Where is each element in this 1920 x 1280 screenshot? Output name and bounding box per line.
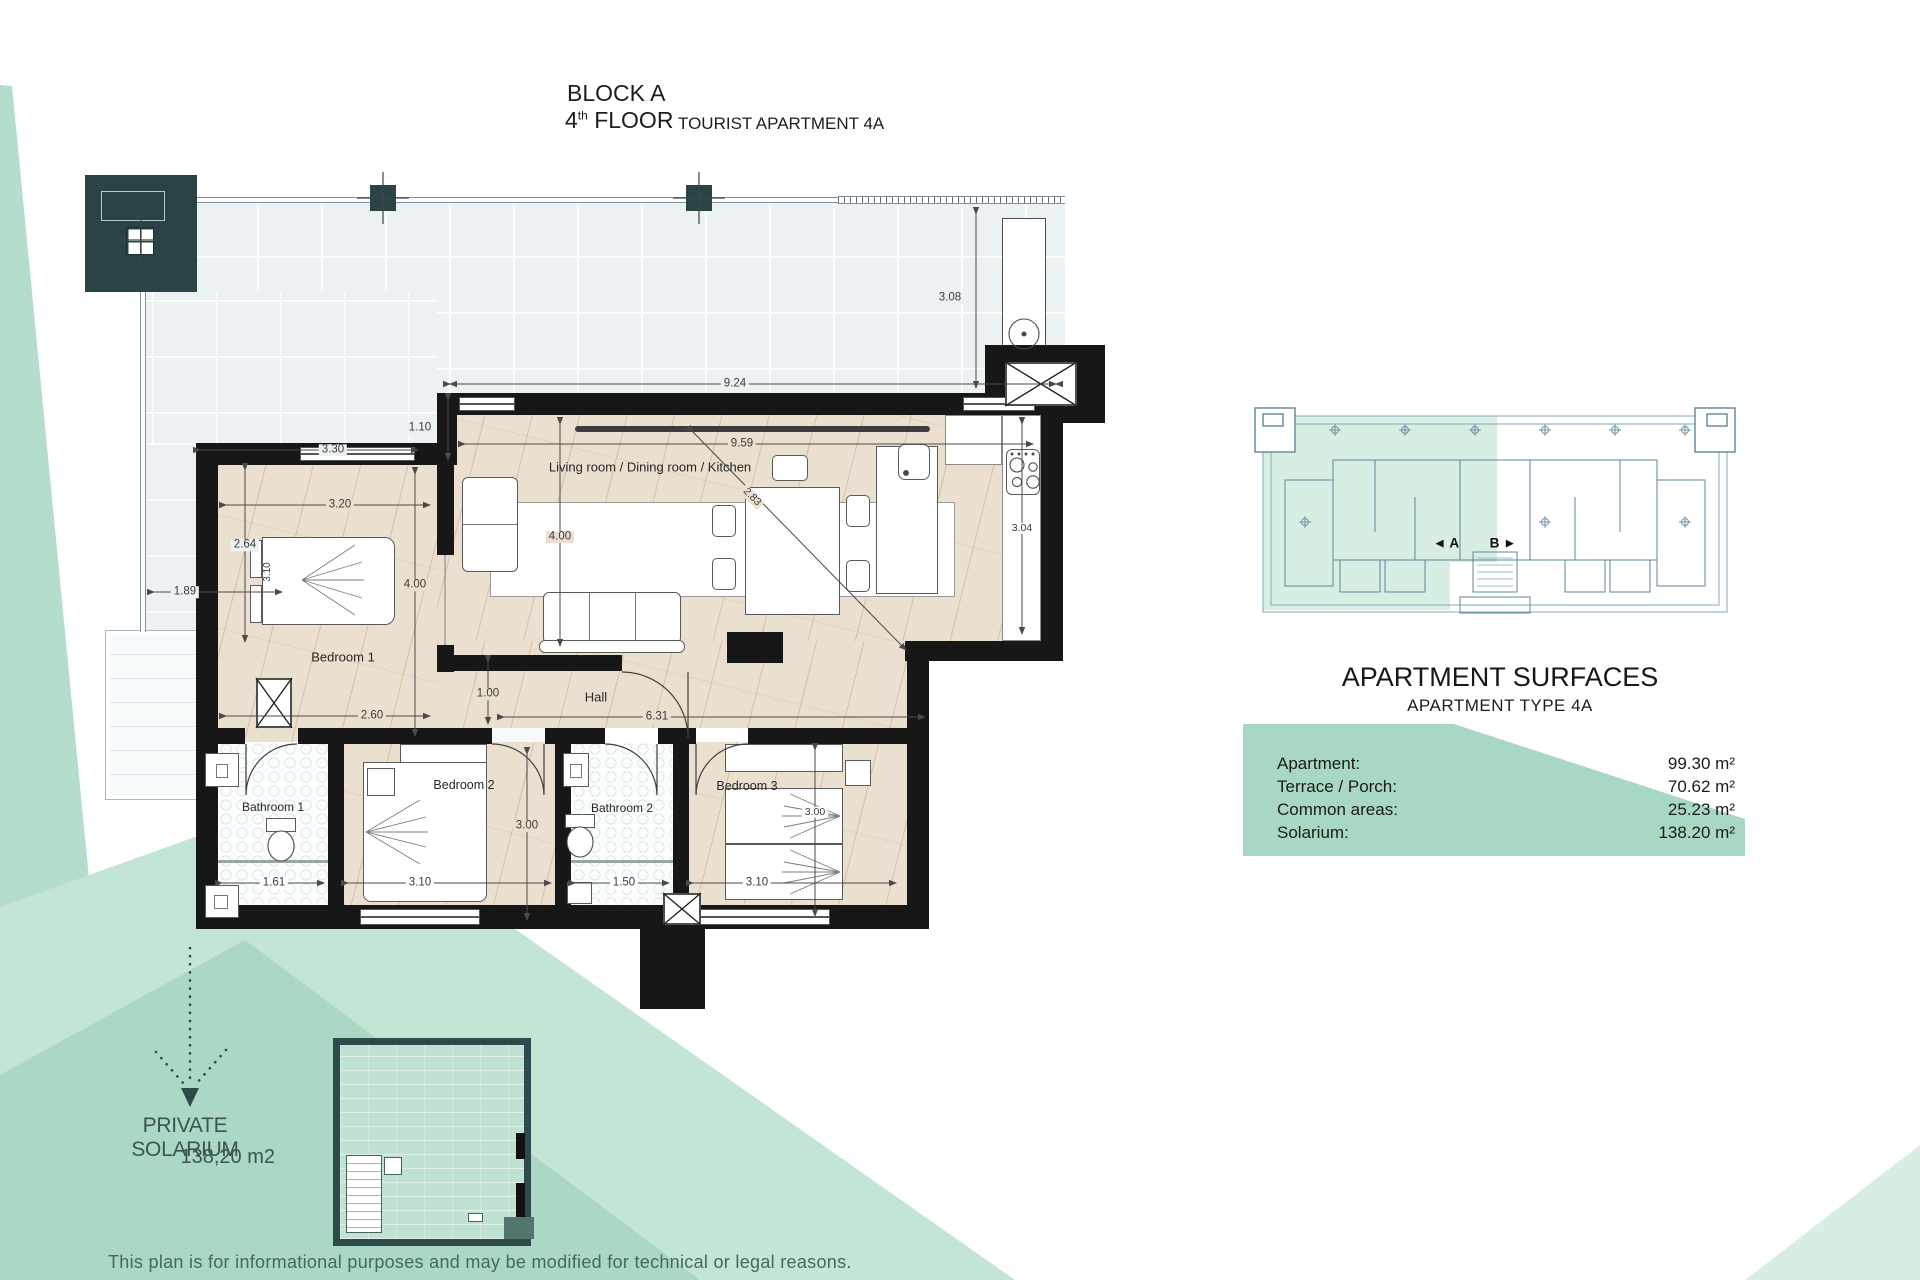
wall [437,655,622,671]
pillow [367,768,395,796]
sofa-icon [543,592,681,644]
room-label-bedroom3: Bedroom 3 [716,779,777,793]
solarium-mini-plan [333,1038,531,1246]
overview-linework [1245,402,1745,640]
bed-headboard [250,585,262,623]
room-label-hall: Hall [585,690,607,705]
wall [907,661,929,929]
stairs-landing [384,1157,402,1175]
column-marker-icon [370,185,396,211]
column-marker-icon [686,185,712,211]
chair-icon [712,505,736,537]
room-label-bedroom2: Bedroom 2 [433,778,494,792]
surface-value: 138.20 m² [1658,823,1735,843]
wall [1041,415,1063,641]
room-label-bedroom1: Bedroom 1 [311,650,375,665]
surfaces-subtitle: APARTMENT TYPE 4A [1240,696,1760,716]
basin-bowl [570,764,582,778]
overview-label-b: B ► [1490,536,1517,551]
terrace-left-pocket [140,292,437,443]
core-grid-window-icon [126,227,154,255]
chair-icon [772,455,808,481]
room-label-bathroom2: Bathroom 2 [591,801,653,815]
room-label-living: Living room / Dining room / Kitchen [549,460,751,475]
overview-label-a: ◄ A [1433,536,1459,551]
solarium-detail [468,1213,483,1222]
floor-ordinal: th [578,108,588,122]
kitchen-cabinet [945,415,1002,465]
solarium-door-jamb [516,1133,525,1159]
bed-icon [725,844,843,900]
window [700,909,830,925]
chair-icon [846,495,870,527]
terrace-rail-left [140,292,146,632]
wall [727,632,783,663]
shaft-x-icon [663,893,701,925]
dim-terrace-top: 9.24 [721,378,749,390]
floor-plan-page: BLOCK A 4th FLOOR TOURIST APARTMENT 4A [0,0,1920,1280]
surfaces-title: APARTMENT SURFACES [1240,662,1760,693]
surface-label: Apartment: [1277,754,1360,774]
wall [196,728,245,744]
tv-icon [575,426,930,432]
core-window-outline [101,191,165,221]
dim-bed2-depth: 3.00 [513,820,541,832]
washer-icon [567,882,592,904]
dim-kitchen-len: 3.04 [1009,523,1035,534]
dim-living-depth: 4.00 [546,531,574,543]
surface-label: Common areas: [1277,800,1398,820]
shaft-x-icon [256,678,292,728]
dim-hall-depth: 1.00 [474,688,502,700]
dim-terrace-left-w: 1.89 [171,586,199,598]
dim-terrace-right: 3.08 [936,292,964,304]
sofa-back [539,640,685,653]
shaft-x-icon [1005,362,1077,406]
chair-icon [846,560,870,592]
dim-bed2-width: 3.10 [406,877,434,889]
dim-step: 1.10 [406,422,434,434]
floor-number: 4 [565,107,578,133]
washbasin-icon [563,753,589,787]
surface-label: Terrace / Porch: [1277,777,1397,797]
surfaces-row: Solarium: 138.20 m² [1243,823,1745,845]
chair-icon [712,558,736,590]
sofa-icon [462,477,518,572]
washbasin-icon [205,753,239,787]
wall [328,742,344,905]
stairs-icon [346,1155,382,1233]
dim-bath2-width: 1.50 [610,877,638,889]
wall [437,465,454,555]
page-title-apartment: TOURIST APARTMENT 4A [678,114,884,134]
wall [196,465,218,742]
dim-bed1-zone: 3.30 [319,444,347,456]
wall [905,641,1063,661]
stove-icon [1006,449,1040,495]
dim-bed1-depth: 4.00 [401,579,429,591]
solarium-area: 138,20 m2 [90,1146,275,1169]
shower-partition [571,860,673,863]
terrace-rail-top [193,197,838,203]
solarium-corner-block [504,1217,534,1239]
stair-core-block [85,175,197,292]
wall [673,742,689,905]
surfaces-table: Apartment: 99.30 m² Terrace / Porch: 70.… [1243,724,1745,856]
dim-bed1-bottom: 2.60 [358,710,386,722]
window [459,397,515,411]
wall [748,728,929,744]
dim-hall-width: 6.31 [643,711,671,723]
floor-word: FLOOR [588,107,674,133]
wall [437,393,457,465]
washer-door [214,895,228,909]
dim-bed3-width: 3.10 [743,877,771,889]
terrace-rail-top-hatched [838,196,1065,204]
closet [725,744,843,772]
page-title-floor: 4th FLOOR [565,107,673,134]
surfaces-row: Common areas: 25.23 m² [1243,800,1745,822]
dim-terrace-left-h: 2.64 [231,539,259,551]
surface-value: 70.62 m² [1668,777,1735,797]
overview-plan: ◄ A B ► [1245,402,1745,640]
room-label-bathroom1: Bathroom 1 [242,800,304,814]
toilet-icon [565,814,595,828]
disclaimer-text: This plan is for informational purposes … [108,1252,852,1273]
bed-icon [262,537,395,625]
terrace-left-column [140,443,196,633]
dim-bath1-width: 1.61 [260,877,288,889]
wall [545,728,605,744]
toilet-icon [266,818,296,832]
dim-bed1-bed: 3.10 [263,559,273,584]
surface-label: Solarium: [1277,823,1349,843]
surface-value: 25.23 m² [1668,800,1735,820]
sink-icon [898,444,930,480]
surface-value: 99.30 m² [1668,754,1735,774]
shower-partition [218,860,328,863]
window [360,909,480,925]
window [300,447,415,461]
surfaces-row: Terrace / Porch: 70.62 m² [1243,777,1745,799]
basin-bowl [216,764,228,778]
terrace-utility-box [1002,218,1046,358]
nightstand [845,760,871,786]
dim-bed1-width: 3.20 [326,499,354,511]
dim-bed3-depth: 3.00 [802,807,828,818]
dim-living-width: 9.59 [728,438,756,450]
page-title-block: BLOCK A [567,80,665,107]
surfaces-row: Apartment: 99.30 m² [1243,754,1745,776]
wall [640,929,705,1009]
washer-icon [205,885,239,918]
